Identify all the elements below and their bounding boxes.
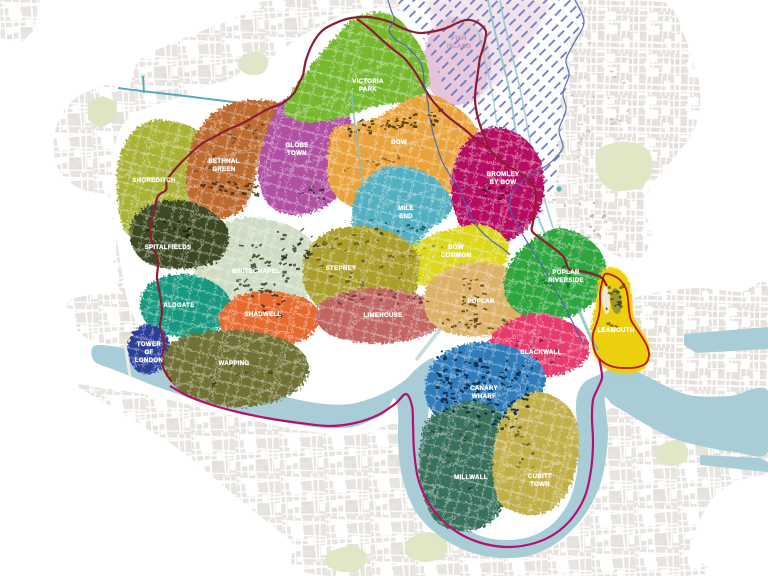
svg-text:MILE: MILE [398, 205, 414, 212]
svg-text:SPITALFIELDS: SPITALFIELDS [145, 244, 192, 251]
svg-text:PARK: PARK [359, 86, 377, 93]
svg-text:LONDON: LONDON [135, 357, 163, 364]
svg-text:BROMLEY: BROMLEY [487, 171, 520, 178]
svg-text:POPLAR: POPLAR [552, 269, 580, 276]
svg-text:SHADWELL: SHADWELL [244, 311, 281, 318]
svg-text:LIMEHOUSE: LIMEHOUSE [363, 312, 402, 319]
svg-text:TOWN: TOWN [530, 481, 550, 488]
svg-text:ALDGATE: ALDGATE [163, 302, 194, 309]
svg-text:END: END [399, 213, 413, 220]
svg-text:LEAMOUTH: LEAMOUTH [597, 327, 634, 334]
svg-text:CUBITT: CUBITT [528, 473, 552, 480]
svg-text:WAPPING: WAPPING [218, 360, 249, 367]
svg-text:TOWN: TOWN [287, 150, 307, 157]
svg-text:FISH: FISH [451, 35, 466, 42]
svg-text:TOWER: TOWER [137, 341, 161, 348]
svg-text:RIVERSIDE: RIVERSIDE [548, 277, 584, 284]
svg-text:GLOBE: GLOBE [285, 142, 308, 149]
svg-text:OF: OF [144, 349, 153, 356]
svg-text:ISLAND: ISLAND [447, 43, 472, 50]
svg-text:BETHNAL: BETHNAL [208, 158, 239, 165]
svg-text:GREEN: GREEN [212, 166, 235, 173]
svg-text:WHARF: WHARF [472, 393, 496, 400]
svg-text:MILLWALL: MILLWALL [454, 474, 488, 481]
svg-text:STEPNEY: STEPNEY [326, 265, 357, 272]
svg-text:BOW: BOW [391, 139, 407, 146]
svg-text:POPLAR: POPLAR [467, 298, 495, 305]
svg-text:BLACKWALL: BLACKWALL [520, 349, 561, 356]
svg-text:CANARY: CANARY [470, 385, 498, 392]
svg-text:VICTORIA: VICTORIA [352, 78, 384, 85]
svg-text:COMMON: COMMON [441, 252, 471, 259]
svg-text:SHOREDITCH: SHOREDITCH [132, 177, 176, 184]
svg-text:BY BOW: BY BOW [490, 179, 517, 186]
svg-text:BOW: BOW [448, 244, 464, 251]
svg-text:WHITECHAPEL: WHITECHAPEL [232, 268, 280, 275]
